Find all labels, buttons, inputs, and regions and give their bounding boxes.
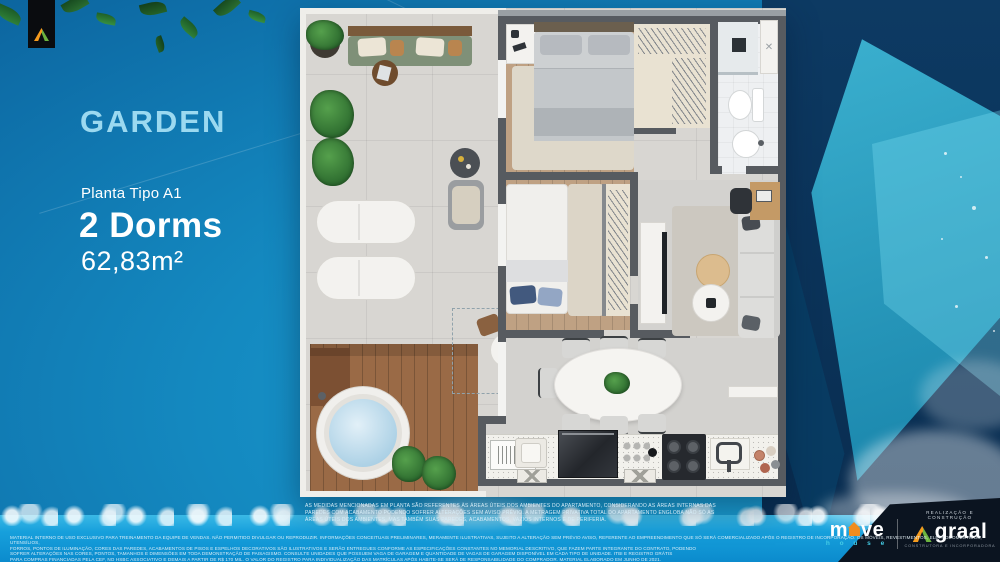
page-title: GARDEN xyxy=(80,104,226,140)
wall-closet-bath xyxy=(710,16,718,174)
poster-canvas: GARDEN Planta Tipo A1 2 Dorms 62,83m² xyxy=(0,0,1000,562)
closet-hangers xyxy=(672,58,706,124)
terrace-bush xyxy=(310,90,354,138)
bed-pillow-blue xyxy=(537,287,563,307)
terrace-side-table xyxy=(450,148,480,178)
leaf-icon xyxy=(0,3,24,25)
leaf-icon xyxy=(60,0,89,17)
note-line: AS MEDIDAS MENCIONADAS EM PLANTA SÃO REF… xyxy=(305,503,780,510)
water-droplet xyxy=(993,330,995,332)
service-hatch xyxy=(517,469,547,483)
terrace-bush xyxy=(312,138,354,186)
sink-faucet-stem xyxy=(727,460,731,472)
leaf-icon xyxy=(139,0,167,18)
bed-pillow xyxy=(588,35,630,55)
desk-chair xyxy=(730,188,752,214)
sofa-back-edge xyxy=(774,210,780,338)
water-droplet xyxy=(955,305,958,308)
bedroom2-blanket xyxy=(506,260,568,282)
planter-foliage xyxy=(306,20,344,50)
toilet-tank xyxy=(752,88,764,122)
legal-line: PARA COMPRAS FINANCIADAS PELA CEF, NO HS… xyxy=(10,557,990,562)
area-label: 62,83m² xyxy=(81,246,184,277)
sink-faucet xyxy=(758,140,764,146)
pan xyxy=(648,448,657,457)
sliding-glass-door xyxy=(498,342,506,416)
floor-plan: ✕ xyxy=(300,8,786,497)
hot-tub-water xyxy=(329,399,397,467)
measurement-note: AS MEDIDAS MENCIONADAS EM PLANTA SÃO REF… xyxy=(305,503,780,524)
stove-burner xyxy=(686,440,700,454)
bar-shelf xyxy=(728,386,778,398)
wall-bedroom2-living xyxy=(630,304,638,338)
wall-bath-bottom xyxy=(746,166,778,174)
leaf-icon xyxy=(213,0,241,20)
deck-plant xyxy=(392,446,426,482)
side-table-decor xyxy=(466,164,471,169)
terrace-sofa-back xyxy=(348,26,472,36)
water-droplet xyxy=(960,176,962,178)
coffee-table-tan xyxy=(696,254,730,288)
tv-screen xyxy=(662,232,667,314)
dining-chair xyxy=(638,414,666,434)
sofa-cushion-line xyxy=(740,252,778,254)
sofa-cushion-line xyxy=(740,296,778,298)
sofa-pillow xyxy=(448,40,462,56)
stove-burner xyxy=(667,440,681,454)
wall-bedroom2-living xyxy=(630,172,638,276)
closet-hangers xyxy=(638,28,706,54)
laptop xyxy=(756,190,772,202)
sun-lounger xyxy=(316,256,416,300)
water-droplet xyxy=(941,238,943,240)
plate xyxy=(771,460,780,469)
wall-master-bedroom2 xyxy=(504,172,634,180)
parapet-wall-bottom xyxy=(300,491,486,497)
plan-type-label: Planta Tipo A1 xyxy=(81,185,182,202)
plate xyxy=(754,450,765,461)
coffee-table-decor xyxy=(706,298,716,308)
wall-kitchen-west xyxy=(478,416,486,486)
leaf-icon xyxy=(154,35,167,53)
bedroom2-rug xyxy=(568,184,604,316)
linen-cabinet: ✕ xyxy=(760,20,778,74)
leaf-icon xyxy=(95,12,116,25)
master-bed-throw xyxy=(534,108,634,136)
lounger-fold-line xyxy=(358,260,360,296)
stove-burner xyxy=(667,459,681,473)
refrigerator-handle xyxy=(562,433,614,435)
sofa-pillow xyxy=(390,40,404,56)
parapet-wall-left xyxy=(300,8,306,497)
leaf-icon xyxy=(177,16,201,39)
water-droplet xyxy=(985,256,988,259)
service-hatch xyxy=(624,469,656,483)
note-line: ÁREAS ÚTEIS DOS AMBIENTES, MAS TAMBÉM SU… xyxy=(305,517,780,524)
master-bed-headboard xyxy=(534,22,634,32)
dorms-label: 2 Dorms xyxy=(79,206,223,246)
water-droplet xyxy=(944,152,947,155)
sofa-pillow xyxy=(357,37,386,57)
window-master xyxy=(498,60,506,118)
sink-basin xyxy=(521,443,541,463)
wall-closet-bottom xyxy=(634,128,676,134)
stove-burner xyxy=(686,459,700,473)
sofa-throw-pillow xyxy=(741,315,761,332)
side-table-decor xyxy=(458,156,464,162)
hot-tub-jet-control xyxy=(318,392,326,400)
deck-plant xyxy=(422,456,456,490)
wall-bath-bottom xyxy=(710,166,722,174)
shower-head xyxy=(732,38,746,52)
refrigerator xyxy=(558,430,618,478)
plate xyxy=(760,463,770,473)
armchair-cushion xyxy=(452,186,480,224)
bed-pillow xyxy=(540,35,582,55)
toilet-bowl xyxy=(728,90,752,120)
lounger-fold-line xyxy=(358,204,360,240)
burner-cover-dots xyxy=(622,440,650,466)
graal-tagline: REALIZAÇÃO E CONSTRUÇÃO xyxy=(903,510,997,520)
sun-lounger xyxy=(316,200,416,244)
closet-hangers xyxy=(608,190,628,310)
parapet-wall-top xyxy=(300,8,506,14)
brand-ribbon xyxy=(28,0,55,48)
wall-bedroom2-hall xyxy=(504,330,604,338)
bathroom-sink xyxy=(732,130,760,158)
water-droplet xyxy=(972,206,976,210)
bed-pillow-navy xyxy=(509,285,536,305)
legal-disclaimer: MATERIAL INTERNO DE USO EXCLUSIVO PARA T… xyxy=(10,535,990,562)
shower-glass xyxy=(718,72,758,75)
nightstand-decor xyxy=(511,30,519,38)
note-line: PAREDES COM ACABAMENTO PODENDO SOFRER AL… xyxy=(305,510,780,517)
legal-line: MATERIAL INTERNO DE USO EXCLUSIVO PARA T… xyxy=(10,535,990,546)
leaf-icon xyxy=(247,10,267,24)
dining-centerpiece xyxy=(604,372,630,394)
window-bedroom2 xyxy=(498,204,506,266)
wall-kitchen-stub xyxy=(478,416,506,424)
sofa-pillow xyxy=(415,37,444,57)
plate xyxy=(766,446,776,456)
